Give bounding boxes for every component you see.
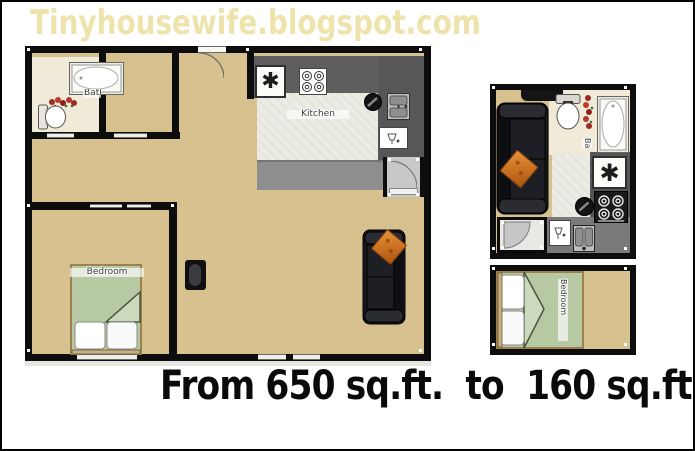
asterisk-glyph: ✱ — [599, 161, 619, 185]
window — [127, 204, 151, 208]
stove-icon — [299, 68, 327, 95]
wall — [169, 202, 177, 354]
kitchen-label: Kitchen — [287, 110, 349, 119]
bedroom-label: Bedroom — [70, 268, 144, 277]
bed-icon: Bedroom — [70, 264, 142, 355]
dishwasher-icon — [379, 127, 408, 149]
round-sink-icon — [364, 93, 382, 111]
tv-icon — [185, 260, 206, 290]
window — [258, 354, 286, 360]
sofa-icon — [362, 229, 406, 325]
door-opening — [198, 46, 226, 53]
floorplan-160sqft-bedroom: Bedroom — [490, 265, 636, 355]
wall — [32, 202, 177, 210]
double-sink-icon — [387, 93, 410, 120]
kitchen-floor — [257, 93, 378, 160]
window — [293, 354, 320, 360]
bedroom-label: Bedroom — [558, 279, 568, 341]
bath-label: Ba — [582, 138, 592, 148]
asterisk-glyph: ✱ — [261, 71, 279, 93]
window — [114, 133, 147, 138]
wall — [172, 53, 179, 132]
door-arc-icon — [500, 220, 544, 250]
window — [90, 204, 122, 208]
door-arc-icon — [198, 53, 224, 79]
floorplan-160sqft: Ba ✱ — [490, 84, 636, 259]
entry-door — [497, 217, 547, 253]
kitchen-counter-bottom — [257, 160, 383, 190]
toilet-icon — [555, 94, 581, 130]
door-leaf — [389, 188, 418, 195]
fridge-icon: ✱ — [592, 156, 627, 189]
caption: From 650 sq.ft. to 160 sq.ft. — [160, 363, 695, 409]
wall — [247, 53, 254, 99]
round-sink-icon — [575, 197, 594, 216]
double-sink-icon — [573, 225, 595, 252]
floorplan-650sqft: Bath ✱ — [25, 46, 431, 361]
blog-title: Tinyhousewife.blogspot.com — [30, 3, 481, 43]
window — [47, 133, 74, 138]
toilet-icon — [38, 104, 66, 130]
flowers-icon — [581, 94, 595, 134]
bathtub-icon — [597, 96, 629, 153]
fridge-icon: ✱ — [255, 65, 286, 98]
door-arc-icon — [389, 161, 417, 189]
window — [77, 354, 137, 360]
sofa-icon — [496, 102, 549, 215]
bed-icon: Bedroom — [496, 271, 584, 349]
wall — [32, 132, 180, 139]
page: Tinyhousewife.blogspot.com — [0, 0, 695, 451]
entry-vestibule — [383, 157, 424, 197]
bath-label: Bath — [83, 89, 101, 98]
stove-icon — [594, 191, 628, 223]
dishwasher-icon — [549, 220, 571, 246]
